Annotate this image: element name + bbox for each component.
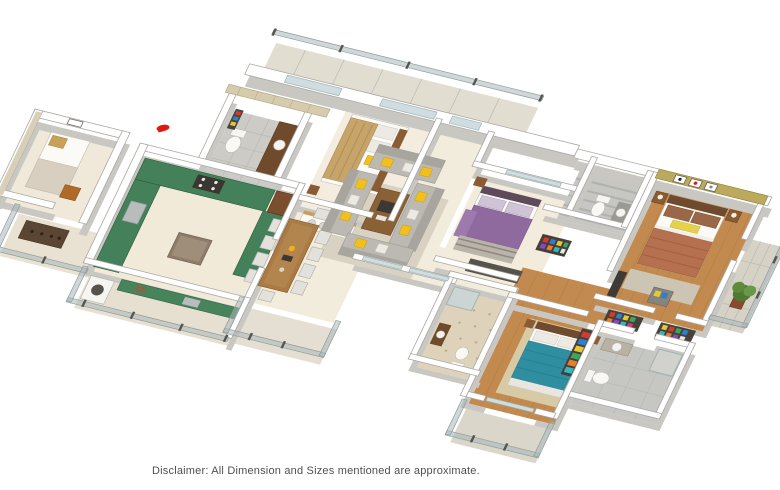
servant-wall-art xyxy=(67,119,83,128)
floor-plan-rendering xyxy=(0,0,780,490)
disclaimer-text: Disclaimer: All Dimension and Sizes ment… xyxy=(152,465,480,477)
floor-plan-page: Disclaimer: All Dimension and Sizes ment… xyxy=(0,0,780,490)
red-location-marker xyxy=(156,124,170,133)
